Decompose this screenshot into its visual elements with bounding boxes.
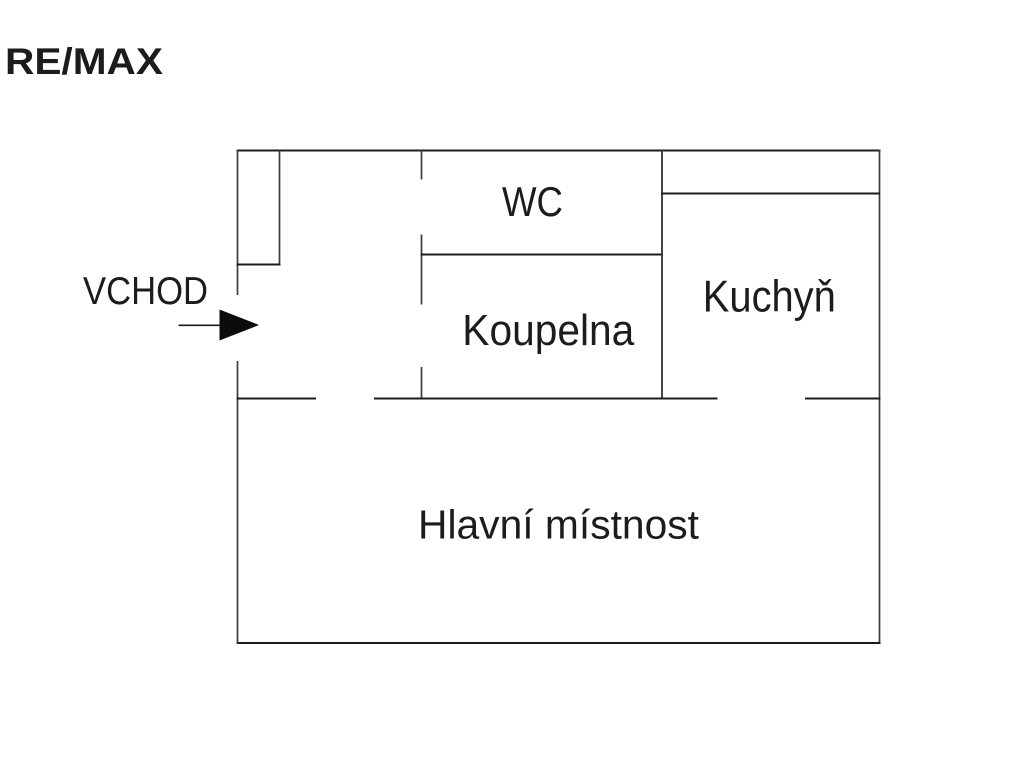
svg-text:Koupelna: Koupelna (462, 306, 634, 355)
svg-text:Hlavní místnost: Hlavní místnost (418, 502, 700, 548)
svg-text:VCHOD: VCHOD (83, 270, 208, 313)
svg-text:Kuchyň: Kuchyň (703, 273, 836, 322)
svg-text:WC: WC (502, 178, 563, 225)
svg-text:RE/MAX: RE/MAX (5, 41, 163, 82)
